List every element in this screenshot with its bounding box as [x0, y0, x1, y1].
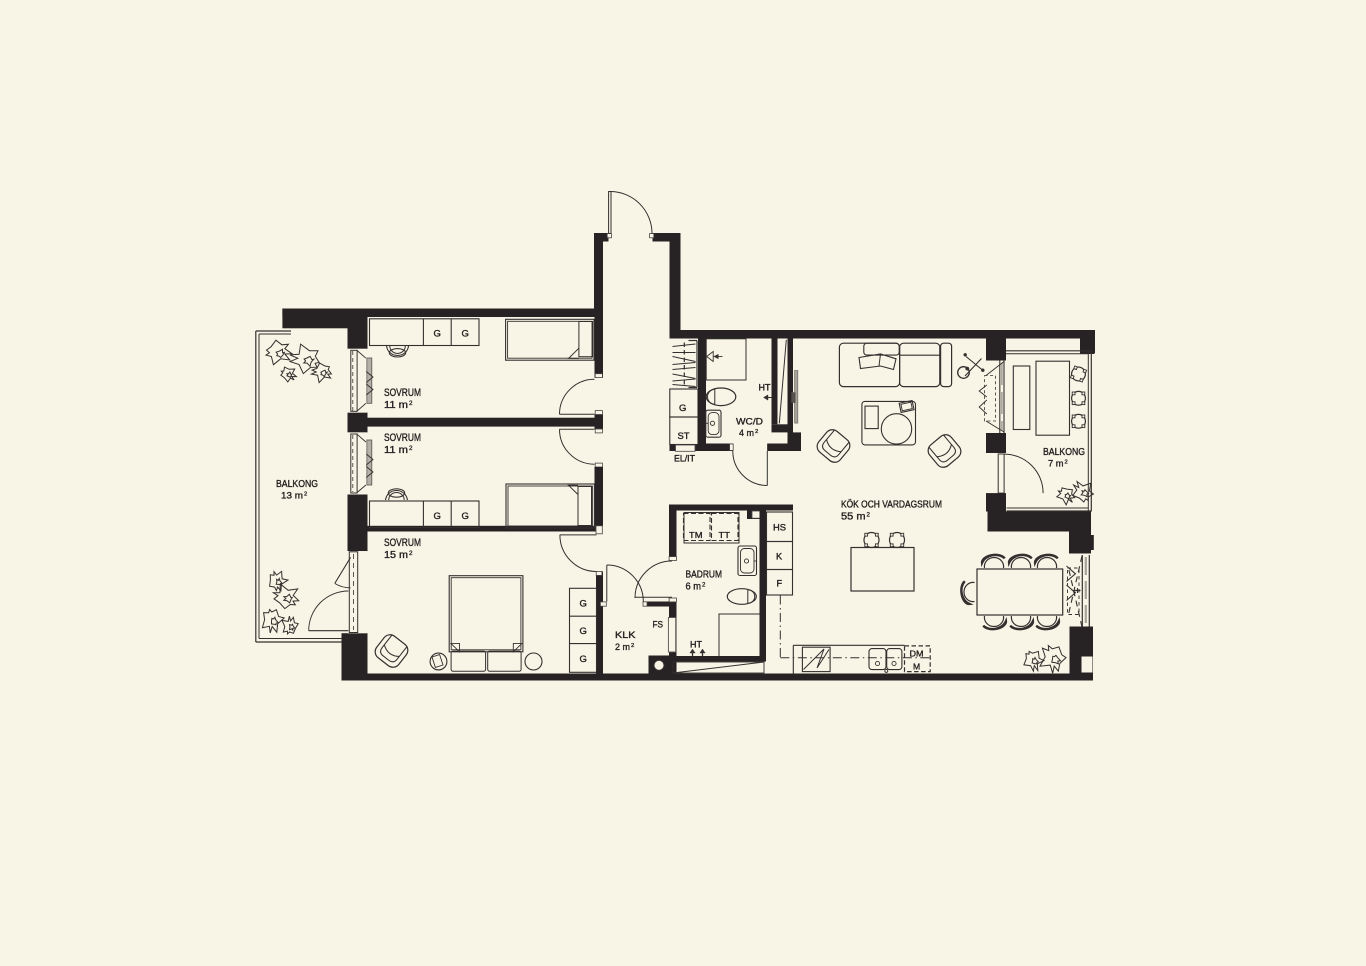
svg-text:HT: HT: [690, 640, 703, 650]
svg-text:BADRUM: BADRUM: [686, 570, 723, 581]
svg-text:KLK: KLK: [615, 630, 636, 641]
svg-text:SOVRUM: SOVRUM: [384, 387, 421, 399]
svg-text:SOVRUM: SOVRUM: [384, 432, 421, 444]
svg-text:G: G: [462, 329, 469, 340]
svg-text:G: G: [462, 511, 469, 522]
svg-text:6 m: 6 m: [686, 582, 702, 593]
svg-text:2: 2: [867, 511, 871, 518]
svg-text:13 m: 13 m: [281, 491, 303, 501]
svg-text:2: 2: [409, 550, 413, 557]
svg-text:ST: ST: [678, 431, 690, 442]
svg-text:BALKONG: BALKONG: [1043, 447, 1085, 458]
svg-text:11 m: 11 m: [384, 445, 408, 456]
svg-text:2: 2: [304, 491, 307, 497]
svg-text:BALKONG: BALKONG: [276, 479, 318, 490]
svg-text:F: F: [777, 579, 783, 589]
svg-text:M: M: [913, 662, 920, 672]
svg-text:55 m: 55 m: [841, 512, 866, 523]
svg-text:K: K: [776, 552, 783, 562]
svg-text:EL/IT: EL/IT: [674, 454, 696, 464]
svg-text:2: 2: [409, 445, 413, 452]
svg-text:4 m: 4 m: [739, 428, 754, 439]
svg-text:G: G: [580, 654, 587, 665]
svg-text:G: G: [434, 511, 441, 522]
svg-text:15 m: 15 m: [384, 550, 408, 561]
svg-text:2: 2: [631, 643, 634, 649]
svg-text:G: G: [580, 626, 587, 637]
svg-text:2: 2: [1065, 459, 1068, 465]
svg-text:2: 2: [755, 429, 758, 435]
svg-text:2: 2: [702, 581, 706, 588]
svg-text:11 m: 11 m: [384, 400, 408, 411]
svg-text:7 m: 7 m: [1048, 459, 1064, 469]
svg-text:TT: TT: [719, 530, 731, 540]
svg-text:G: G: [679, 403, 686, 414]
svg-text:2: 2: [409, 400, 413, 407]
svg-text:FS: FS: [653, 620, 664, 630]
svg-text:KÖK OCH VARDAGSRUM: KÖK OCH VARDAGSRUM: [841, 499, 942, 511]
svg-text:G: G: [580, 599, 587, 610]
svg-text:HT: HT: [759, 383, 772, 393]
svg-text:SOVRUM: SOVRUM: [384, 537, 421, 549]
svg-text:WC/D: WC/D: [736, 417, 763, 428]
svg-text:TM: TM: [689, 530, 703, 540]
svg-text:G: G: [434, 329, 441, 340]
svg-text:2 m: 2 m: [615, 642, 630, 653]
svg-text:HS: HS: [773, 523, 786, 533]
svg-text:DM: DM: [910, 649, 924, 659]
